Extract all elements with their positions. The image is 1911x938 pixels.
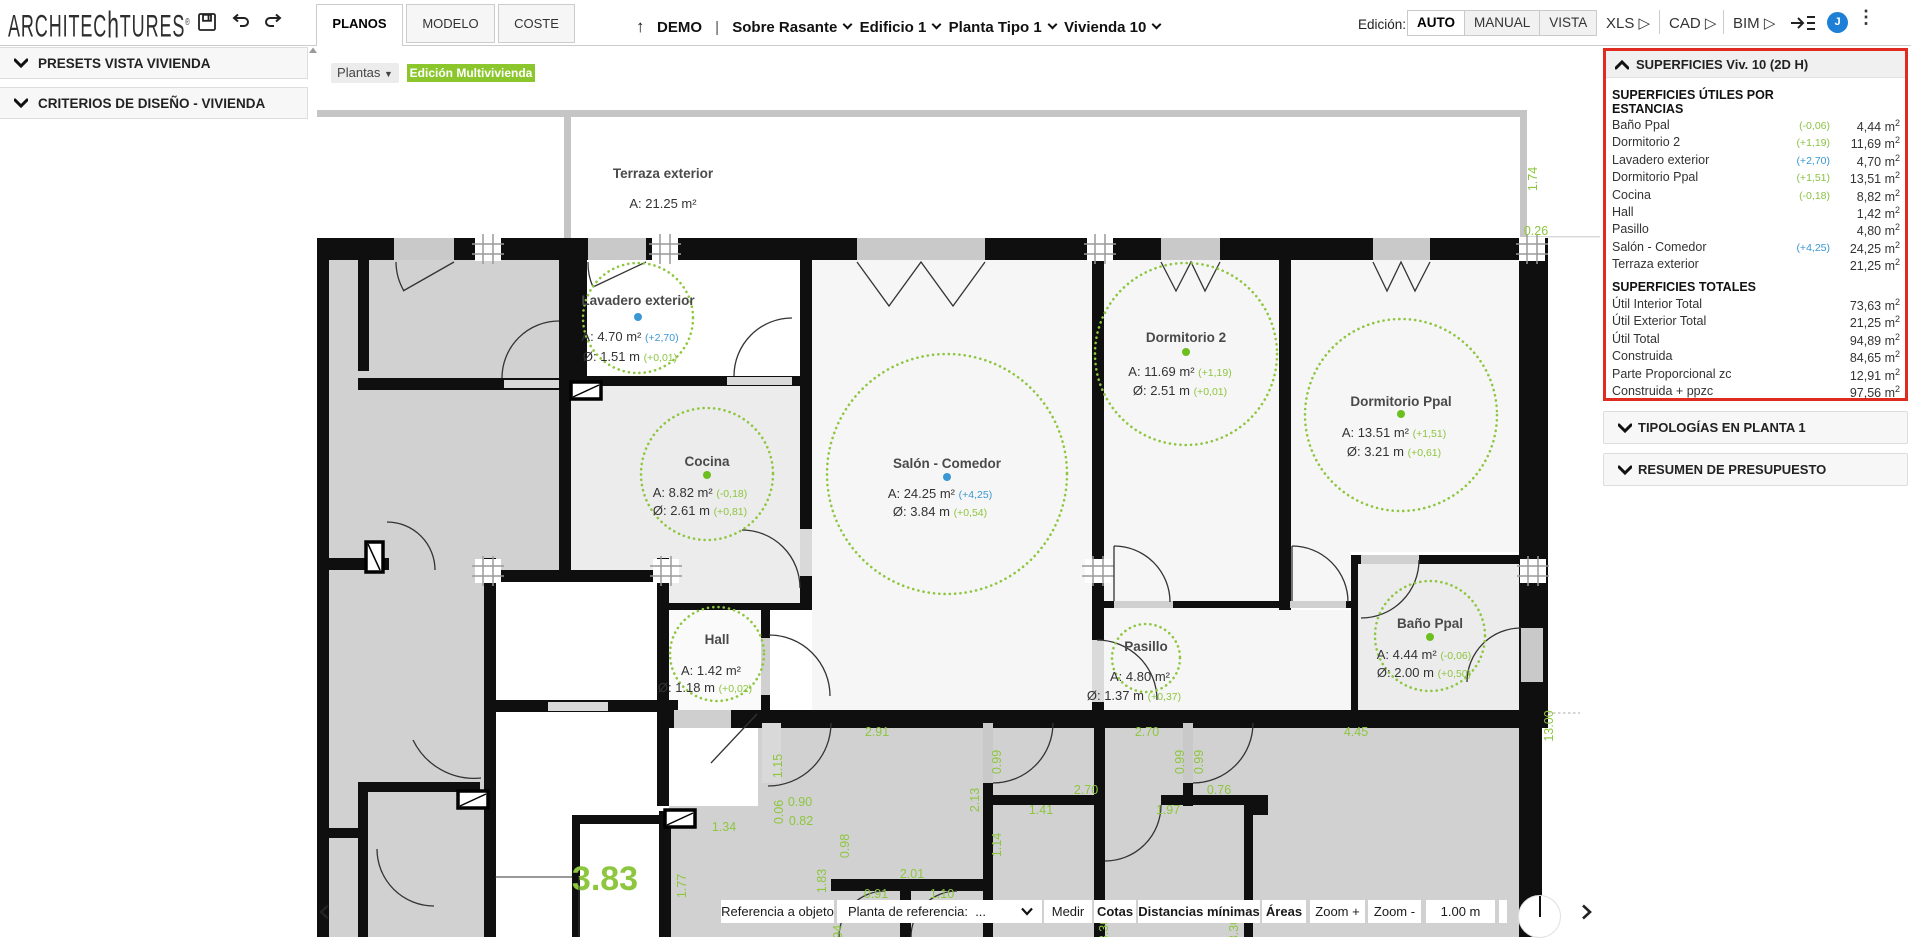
svg-text:Ø: 2.00 m (+0,50): Ø: 2.00 m (+0,50) — [1377, 665, 1471, 680]
svg-text:4.45: 4.45 — [1344, 725, 1368, 739]
svg-text:0.99: 0.99 — [990, 750, 1004, 774]
svg-text:2.01: 2.01 — [900, 867, 924, 881]
svg-text:Hall: Hall — [705, 632, 730, 647]
svg-text:1.97: 1.97 — [1156, 803, 1180, 817]
svg-text:Ø: 2.51 m (+0,01): Ø: 2.51 m (+0,01) — [1133, 383, 1227, 398]
svg-text:2.70: 2.70 — [1074, 783, 1098, 797]
svg-text:0.91: 0.91 — [864, 887, 888, 901]
svg-text:Baño Ppal: Baño Ppal — [1397, 616, 1463, 631]
svg-text:1.14: 1.14 — [990, 833, 1004, 857]
svg-text:0.82: 0.82 — [789, 814, 813, 828]
svg-text:1.15: 1.15 — [771, 754, 785, 778]
svg-text:0.90: 0.90 — [788, 795, 812, 809]
svg-text:0.76: 0.76 — [1207, 783, 1231, 797]
svg-text:A: 1.42 m²: A: 1.42 m² — [681, 663, 742, 678]
svg-text:A: 4.44 m² (-0,06): A: 4.44 m² (-0,06) — [1377, 647, 1472, 662]
svg-text:A: 4.80 m²: A: 4.80 m² — [1110, 669, 1171, 684]
svg-text:Ø: 3.84 m (+0,54): Ø: 3.84 m (+0,54) — [893, 504, 987, 519]
svg-text:2.70: 2.70 — [1135, 725, 1159, 739]
svg-text:Salón - Comedor: Salón - Comedor — [893, 456, 1002, 471]
svg-text:A: 21.25 m²: A: 21.25 m² — [629, 196, 697, 211]
svg-text:Ø: 3.21 m (+0,61): Ø: 3.21 m (+0,61) — [1347, 444, 1441, 459]
svg-text:1.77: 1.77 — [675, 874, 689, 898]
svg-text:Terraza exterior: Terraza exterior — [613, 166, 714, 181]
svg-text:Dormitorio Ppal: Dormitorio Ppal — [1350, 394, 1451, 409]
svg-text:A: 11.69 m² (+1,19): A: 11.69 m² (+1,19) — [1128, 364, 1231, 379]
svg-text:Dormitorio 2: Dormitorio 2 — [1146, 330, 1226, 345]
svg-text:Ø: 1.51 m (+0,01): Ø: 1.51 m (+0,01) — [583, 349, 677, 364]
svg-text:Lavadero exterior: Lavadero exterior — [581, 293, 695, 308]
svg-text:0.94: 0.94 — [831, 925, 845, 937]
svg-text:1.83: 1.83 — [815, 869, 829, 893]
svg-text:Ø: 1.37 m (+0,37): Ø: 1.37 m (+0,37) — [1087, 688, 1181, 703]
svg-text:Ø: 1.18 m (+0,02): Ø: 1.18 m (+0,02) — [658, 680, 752, 695]
svg-text:Cocina: Cocina — [684, 454, 730, 469]
svg-text:0.99: 0.99 — [1192, 750, 1206, 774]
svg-text:1.10: 1.10 — [930, 887, 954, 901]
svg-text:0.06: 0.06 — [772, 800, 786, 824]
svg-text:Ø: 2.61 m (+0,81): Ø: 2.61 m (+0,81) — [653, 503, 747, 518]
svg-text:2.13: 2.13 — [968, 788, 982, 812]
svg-text:2.91: 2.91 — [865, 725, 889, 739]
svg-text:A: 24.25 m² (+4,25): A: 24.25 m² (+4,25) — [888, 486, 992, 501]
svg-text:A: 8.82 m² (-0,18): A: 8.82 m² (-0,18) — [653, 485, 748, 500]
svg-text:1.74: 1.74 — [1526, 167, 1540, 191]
svg-text:1.34: 1.34 — [712, 820, 736, 834]
svg-text:1.41: 1.41 — [1029, 803, 1053, 817]
svg-text:A: 13.51 m² (+1,51): A: 13.51 m² (+1,51) — [1342, 425, 1446, 440]
svg-text:13.00: 13.00 — [1542, 710, 1556, 741]
svg-text:0.98: 0.98 — [838, 834, 852, 858]
svg-text:A: 4.70 m² (+2,70): A: 4.70 m² (+2,70) — [581, 329, 678, 344]
svg-text:3.83: 3.83 — [572, 860, 638, 898]
svg-text:0.99: 0.99 — [1173, 750, 1187, 774]
svg-text:Pasillo: Pasillo — [1124, 639, 1168, 654]
svg-text:0.26: 0.26 — [1524, 224, 1548, 238]
